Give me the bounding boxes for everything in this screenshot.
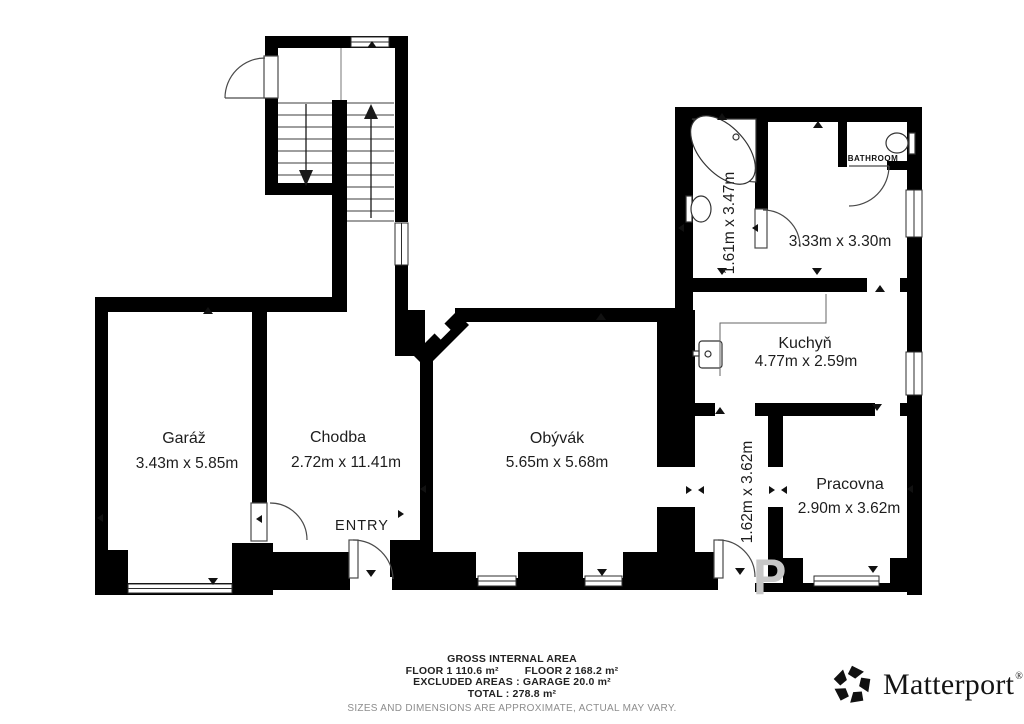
pracovna-label: Pracovna <box>816 476 884 493</box>
door-small-bathroom <box>849 166 889 206</box>
floorplan-page: P Garáž 3.43m x 5.85m Chodba 2.72m x 11.… <box>0 0 1024 724</box>
stairs-down <box>278 103 332 186</box>
garaz-label: Garáž <box>162 430 206 447</box>
stairs-up <box>341 48 394 221</box>
kuchyn-dims: 4.77m x 2.59m <box>755 353 858 370</box>
pracovna-dims: 2.90m x 3.62m <box>798 500 901 517</box>
room-labels: Garáž 3.43m x 5.85m Chodba 2.72m x 11.41… <box>136 154 901 543</box>
window-stair-corridor <box>395 223 408 265</box>
door-garage-hall <box>251 503 307 541</box>
matterport-pinwheel-icon <box>830 663 874 707</box>
kuchyn-label: Kuchyň <box>778 335 831 352</box>
floor2-area: FLOOR 2 168.2 m² <box>525 665 619 677</box>
garage-door <box>128 584 232 593</box>
entry-label: ENTRY <box>335 518 389 534</box>
floorplan-drawing: P Garáž 3.43m x 5.85m Chodba 2.72m x 11.… <box>0 0 1024 724</box>
floor1-area: FLOOR 1 110.6 m² <box>406 665 499 677</box>
watermark-letter: P <box>753 549 786 605</box>
window-right-kitchen <box>906 352 922 395</box>
toilet-icon-2 <box>886 133 915 154</box>
toilet-icon <box>686 196 711 222</box>
garaz-dims: 3.43m x 5.85m <box>136 455 239 472</box>
chodba-label: Chodba <box>310 429 366 446</box>
obyvak-label: Obývák <box>530 430 585 447</box>
window-right-top <box>906 190 922 237</box>
door-landing-exterior <box>225 56 278 98</box>
matterport-logo: Matterport® <box>830 663 1022 707</box>
room-333-dims: 3.33m x 3.30m <box>789 233 892 250</box>
hall-162-dims: 1.62m x 3.62m <box>739 441 756 544</box>
bathroom-large-dims: 1.61m x 3.47m <box>721 172 738 275</box>
bathroom-small-label: BATHROOM <box>848 154 899 163</box>
matterport-wordmark: Matterport <box>883 668 1014 702</box>
window-livingroom-1 <box>478 576 516 586</box>
obyvak-dims: 5.65m x 5.68m <box>506 454 609 471</box>
window-pracovna <box>814 576 879 586</box>
stairs-up-arrow <box>364 104 378 119</box>
door-hall-exterior <box>714 540 755 578</box>
chodba-dims: 2.72m x 11.41m <box>291 454 401 471</box>
kitchen-sink-icon <box>693 341 722 368</box>
window-livingroom-2 <box>585 576 622 586</box>
registered-mark: ® <box>1015 671 1023 682</box>
